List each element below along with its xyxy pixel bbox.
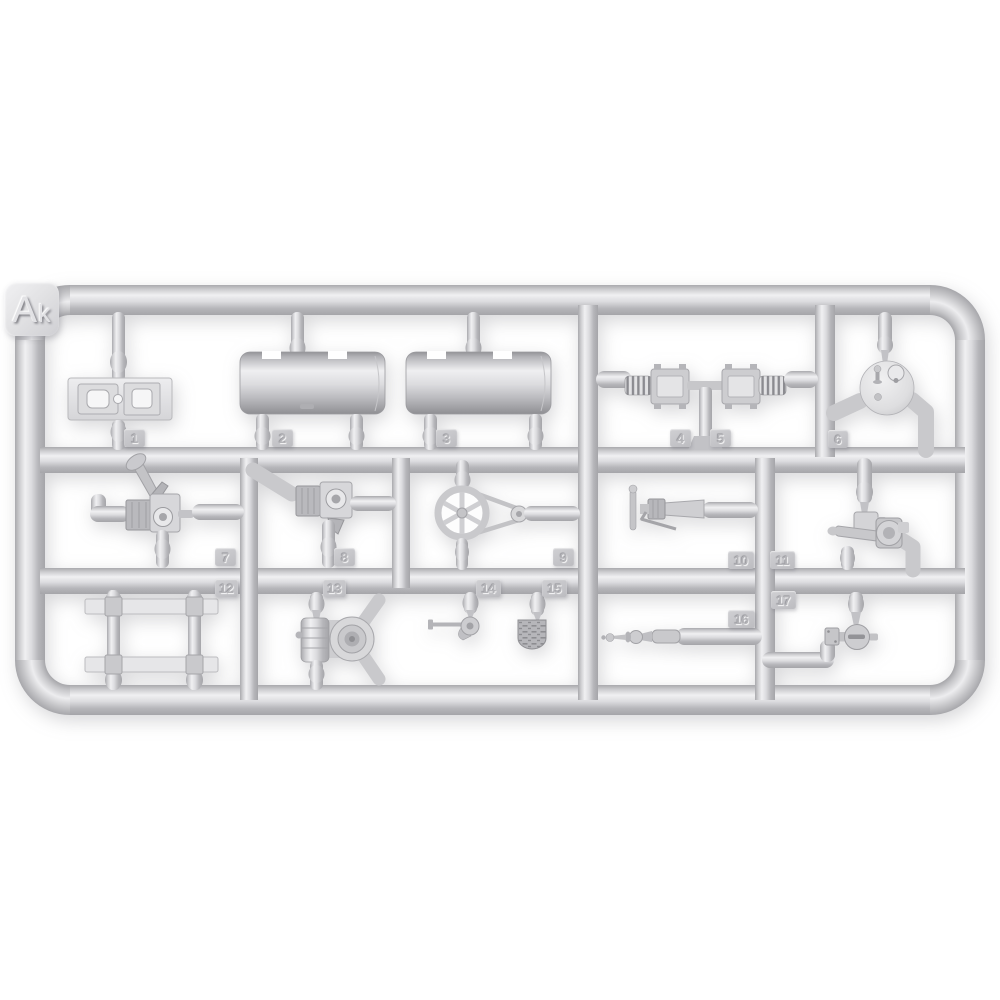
part-tag-13: 13 [323,579,346,597]
product-photo: Ak 1 2 3 4 5 6 7 8 9 10 11 12 13 14 15 1… [0,0,1000,1000]
part-10-grease-gun [629,485,758,530]
part-tag-3: 3 [436,429,457,447]
part-13-pump [296,592,380,690]
part-tag-10: 10 [728,551,754,569]
part-tag-12: 12 [215,579,238,597]
sprue-letter-large: A [12,288,37,332]
part-tag-8: 8 [334,548,355,566]
sprue-letter-tab: Ak [4,282,59,336]
part-tag-17: 17 [771,591,796,609]
part-tag-11: 11 [770,551,795,569]
part-tag-9: 9 [553,548,574,566]
part-12-ladder-frame [85,590,218,690]
part-3-tank-cylinder [406,312,551,450]
part-8-fitting-valve [253,470,396,568]
part-tag-6: 6 [828,430,848,448]
part-2-tank-cylinder [240,312,385,450]
part-14-crank-lever [428,592,479,640]
part-6-round-cover-disc [834,312,926,450]
part-tag-2: 2 [272,429,293,447]
part-11-lever-valve [828,458,914,570]
runner-v2 [392,458,410,588]
part-15-tread-plate [518,592,546,649]
part-tag-5: 5 [710,429,731,447]
part-tag-14: 14 [476,579,501,597]
part-16-shaft-rod [601,628,762,645]
part-tag-7: 7 [215,548,236,566]
part-tag-4: 4 [670,429,691,447]
runner-v1 [240,458,258,700]
part-tag-1: 1 [124,429,145,447]
part-4-5-spring-couplings [596,364,818,450]
runner-h2 [40,568,965,594]
sprue-letter-small: k [38,292,51,336]
part-1-mounting-plate [68,312,172,450]
part-tag-15: 15 [542,579,567,597]
part-tag-16: 16 [728,610,755,628]
runner-v3 [578,305,598,700]
sprue-graphic [0,0,1000,1000]
